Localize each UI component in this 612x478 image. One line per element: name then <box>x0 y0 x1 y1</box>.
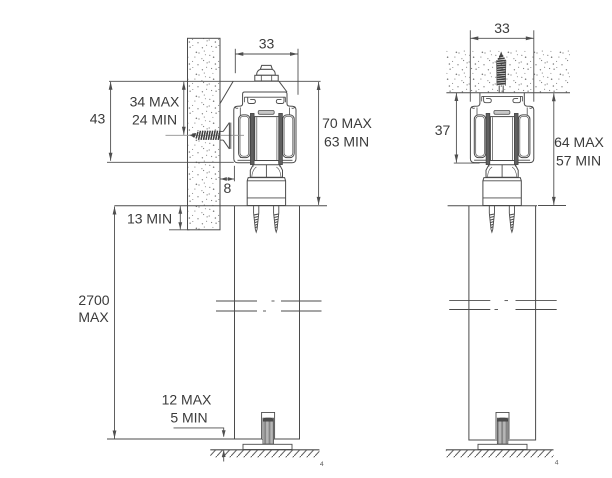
svg-text:8: 8 <box>224 180 232 196</box>
svg-text:5 MIN: 5 MIN <box>170 410 207 426</box>
svg-text:4: 4 <box>320 461 324 468</box>
svg-text:63 MIN: 63 MIN <box>324 134 369 150</box>
svg-text:4: 4 <box>555 459 559 466</box>
svg-text:37: 37 <box>435 122 451 138</box>
svg-text:57 MIN: 57 MIN <box>556 153 601 169</box>
svg-text:64 MAX: 64 MAX <box>554 134 604 150</box>
svg-text:33: 33 <box>494 20 510 36</box>
svg-text:MAX: MAX <box>78 309 109 325</box>
svg-text:13 MIN: 13 MIN <box>127 211 172 227</box>
svg-text:43: 43 <box>90 111 106 127</box>
svg-text:12 MAX: 12 MAX <box>162 392 212 408</box>
svg-text:24 MIN: 24 MIN <box>132 111 177 127</box>
svg-text:34 MAX: 34 MAX <box>130 93 180 109</box>
svg-text:33: 33 <box>259 36 275 52</box>
svg-text:70 MAX: 70 MAX <box>322 115 372 131</box>
svg-text:2700: 2700 <box>78 292 109 308</box>
